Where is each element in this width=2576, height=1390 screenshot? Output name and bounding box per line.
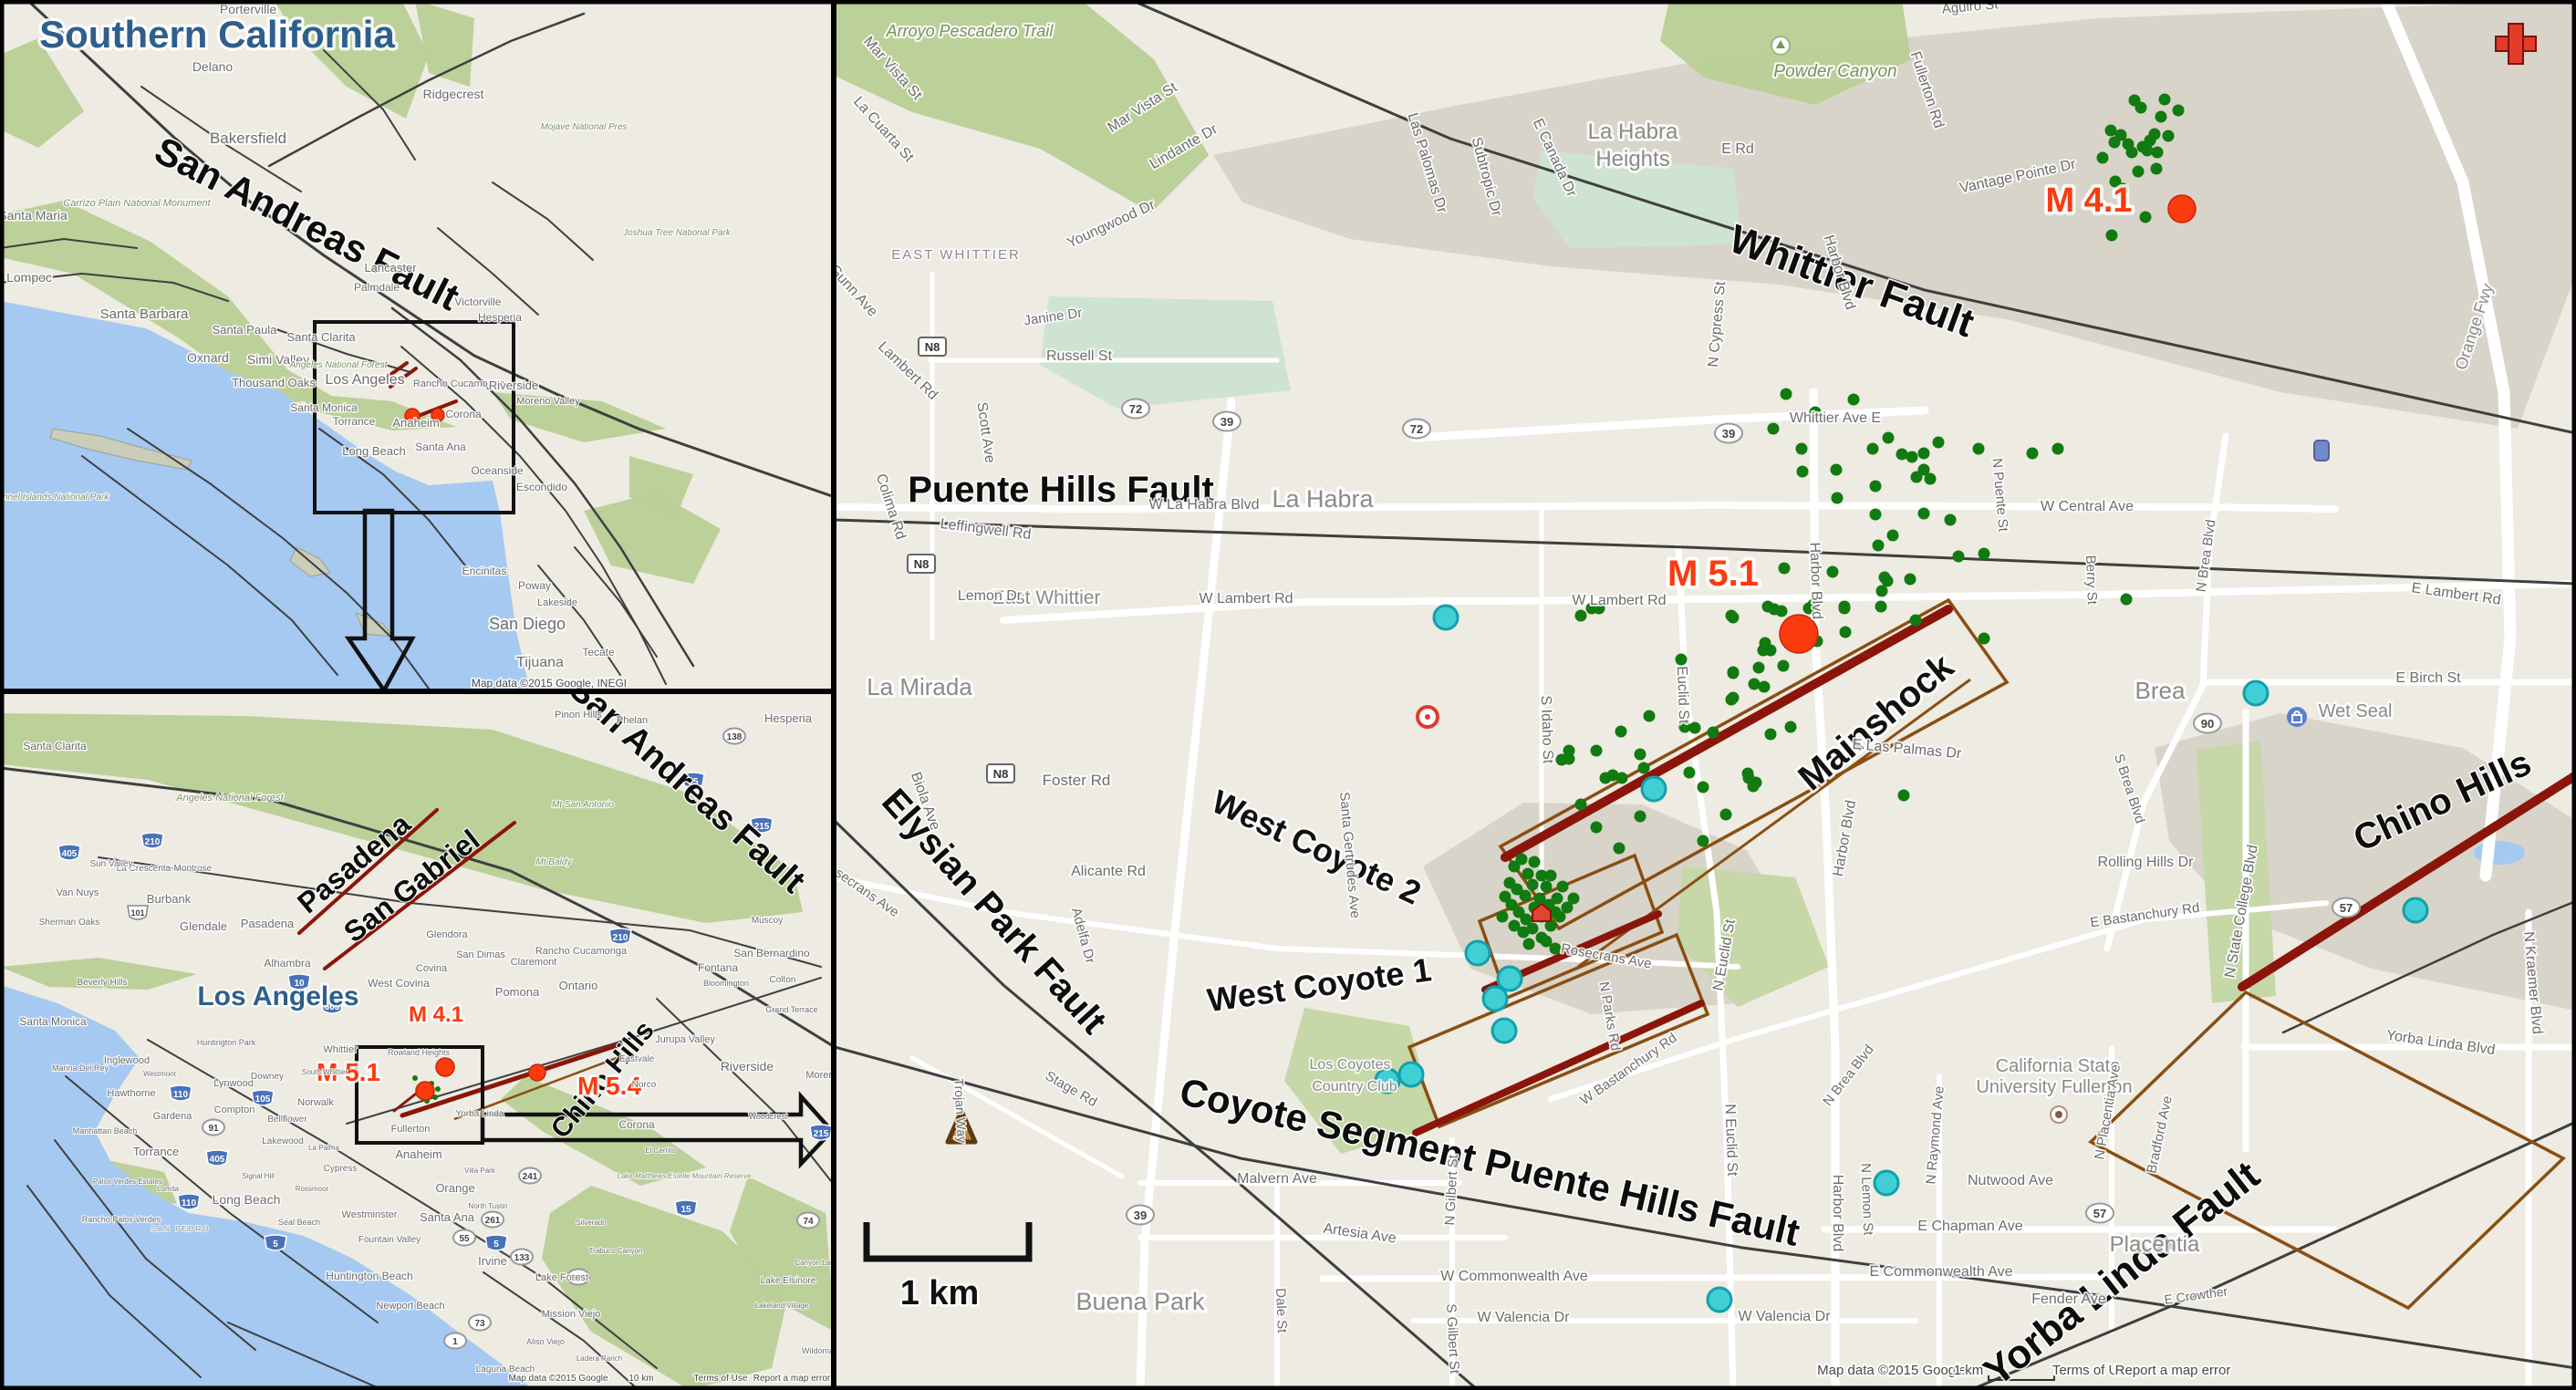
label-57: 57 <box>2093 1207 2106 1220</box>
label-santa-clarita: Santa Clarita <box>286 330 356 344</box>
label-los-angeles: Los Angeles <box>325 372 404 388</box>
route-shield-210: 210 <box>141 833 163 848</box>
label-marina-del-rey: Marina Del Rey <box>52 1063 109 1073</box>
label-n-lemon-st: N Lemon St <box>1858 1163 1876 1237</box>
map-la-habra-detail: N8N8N87272393939905757Whittier FaultPuen… <box>817 0 2576 1390</box>
aftershock-dot <box>1516 854 1528 866</box>
aftershock-dot <box>1527 879 1539 891</box>
label-gardena: Gardena <box>153 1111 193 1122</box>
aftershock-dot <box>1779 563 1791 575</box>
label-encinitas: Encinitas <box>462 565 507 577</box>
aftershock-dot <box>2097 152 2109 164</box>
aftershock-dot <box>1684 767 1696 779</box>
label-fullerton: Fullerton <box>391 1124 431 1135</box>
station-dot <box>1434 606 1458 629</box>
label-rossmoor: Rossmoor <box>296 1185 329 1193</box>
label-woodcrest: Woodcrest <box>749 1112 788 1121</box>
label-muscoy: Muscoy <box>752 916 783 926</box>
label-silverado: Silverado <box>576 1219 607 1227</box>
aftershock-dot <box>1785 721 1797 733</box>
route-shield-72: 72 <box>1122 399 1149 419</box>
aftershock-dot <box>1557 881 1569 893</box>
label-261: 261 <box>485 1216 501 1226</box>
label-n8: N8 <box>925 340 940 354</box>
aftershock-dot <box>1568 893 1580 905</box>
label-eastvale: Eastvale <box>619 1054 655 1064</box>
label-72: 72 <box>1410 422 1423 436</box>
label-72: 72 <box>1129 402 1142 416</box>
label-ladera-ranch: Ladera Ranch <box>576 1354 622 1363</box>
label-santa-monica: Santa Monica <box>290 401 358 414</box>
aftershock-dot <box>2163 130 2175 142</box>
label-corona: Corona <box>618 1118 655 1131</box>
label-santa-maria: Santa Maria <box>0 208 68 223</box>
label-lakewood: Lakewood <box>262 1136 304 1146</box>
aftershock-dot <box>1910 615 1922 627</box>
aftershock-dot <box>1635 749 1646 761</box>
aftershock-dot <box>2142 145 2154 157</box>
label-angeles-national-forest: Angeles National Forest <box>175 793 284 804</box>
label-newport-beach: Newport Beach <box>376 1301 444 1312</box>
route-shield-72: 72 <box>1403 420 1430 439</box>
aftershock-dot <box>1827 566 1839 578</box>
route-shield-90: 90 <box>2194 714 2221 733</box>
aftershock-dot <box>1563 753 1575 765</box>
label-e-rd: E Rd <box>1721 141 1754 157</box>
label-riverside: Riverside <box>489 379 538 392</box>
aftershock-dot <box>2126 147 2138 159</box>
label-norco: Norco <box>632 1080 657 1090</box>
label-lake-forest: Lake Forest <box>535 1272 588 1283</box>
label-foster-rd: Foster Rd <box>1043 772 1111 789</box>
label-mt-baldy: Mt Baldy <box>536 857 573 867</box>
aftershock-dot <box>1527 923 1539 935</box>
route-shield-15: 15 <box>675 1200 697 1216</box>
station-dot <box>2404 898 2427 922</box>
aftershock-dot <box>1973 443 1985 455</box>
label-compton: Compton <box>214 1105 255 1115</box>
label-dale-st: Dale St <box>1272 1288 1290 1334</box>
label-73: 73 <box>474 1319 485 1329</box>
route-shield-N8: N8 <box>908 555 935 573</box>
label-lynwood: Lynwood <box>213 1078 254 1089</box>
epicenter-dot <box>1780 615 1818 653</box>
aftershock-dot <box>1906 451 1918 463</box>
aftershock-dot <box>1753 662 1765 674</box>
route-shield-241: 241 <box>519 1168 541 1184</box>
aftershock-dot <box>1832 493 1844 504</box>
aftershock-dot <box>1616 773 1628 784</box>
aftershock-dot <box>1520 890 1532 902</box>
map-canvas: Southern CaliforniaSan Andreas FaultPort… <box>0 0 2576 1390</box>
epicenter-dot <box>436 1058 454 1076</box>
aftershock-dot <box>1575 799 1587 811</box>
label-lomita: Lomita <box>157 1185 180 1193</box>
label-cypress: Cypress <box>324 1164 358 1174</box>
aftershock-dot <box>1749 679 1761 690</box>
label-palos-verdes-estates: Palos Verdes Estates <box>93 1177 162 1186</box>
aftershock-dot <box>1614 843 1626 855</box>
route-shield-101: 101 <box>128 906 148 919</box>
aftershock-dot <box>1500 891 1511 903</box>
label-lompoc: Lompoc <box>6 270 52 285</box>
aftershock-dot <box>1720 809 1732 821</box>
route-shield-57: 57 <box>2086 1204 2114 1223</box>
label-carrizo-plain-national-monument: Carrizo Plain National Monument <box>63 198 211 209</box>
label-arroyo-pescadero-trail: Arroyo Pescadero Trail <box>886 22 1054 40</box>
label-santa-paula: Santa Paula <box>213 323 278 337</box>
label-ridgecrest: Ridgecrest <box>423 87 484 101</box>
label-lemon-dr: Lemon Dr <box>958 588 1023 604</box>
label-inglewood: Inglewood <box>104 1055 150 1066</box>
aftershock-dot <box>2027 448 2039 460</box>
label-westmont: Westmont <box>143 1070 177 1078</box>
label-mojave-national-pres: Mojave National Pres <box>540 122 627 132</box>
aftershock-dot <box>1778 660 1790 672</box>
aftershock-dot <box>1840 627 1852 638</box>
aftershock-dot <box>1776 606 1788 617</box>
label-n8: N8 <box>993 767 1009 781</box>
label-powder-canyon: Powder Canyon <box>1773 62 1896 81</box>
label-irvine: Irvine <box>478 1254 507 1268</box>
label-57: 57 <box>2340 901 2353 915</box>
label-138: 138 <box>727 732 743 742</box>
label-110: 110 <box>182 1198 197 1208</box>
route-shield-1: 1 <box>444 1333 466 1349</box>
aftershock-dot <box>1883 432 1895 444</box>
label-lancaster: Lancaster <box>364 261 417 275</box>
label-san-pedro: SAN PEDRO <box>151 1225 210 1233</box>
label-39: 39 <box>1722 427 1735 441</box>
route-shield-74: 74 <box>797 1213 819 1229</box>
label-w-lambert-rd: W Lambert Rd <box>1199 591 1293 607</box>
aftershock-dot <box>1591 745 1603 757</box>
label-15: 15 <box>680 1205 691 1215</box>
label-405: 405 <box>62 849 78 859</box>
label-anaheim: Anaheim <box>392 416 439 430</box>
aftershock-dot <box>2149 129 2161 140</box>
aftershock-dot <box>2135 102 2147 114</box>
label-w-lambert-rd: W Lambert Rd <box>1572 593 1666 608</box>
aftershock-dot <box>2052 443 2064 455</box>
route-shield-N8: N8 <box>919 337 946 356</box>
bag-icon <box>2287 707 2307 727</box>
label-oxnard: Oxnard <box>187 350 229 365</box>
label-huntington-park: Huntington Park <box>197 1038 256 1047</box>
label-long-beach: Long Beach <box>342 444 405 458</box>
label-10-km: 10 km <box>628 1374 653 1384</box>
aftershock-dot <box>1875 601 1887 613</box>
label-escondido: Escondido <box>516 481 567 493</box>
label-sherman-oaks: Sherman Oaks <box>39 918 100 928</box>
label-pomona: Pomona <box>495 985 540 999</box>
label-39: 39 <box>1220 415 1233 429</box>
panel-divider-horizontal <box>0 689 836 694</box>
aftershock-dot <box>2151 163 2163 175</box>
label-grand-terrace: Grand Terrace <box>765 1005 817 1014</box>
aftershock-dot <box>1925 473 1937 485</box>
label-lakeland-village: Lakeland Village <box>755 1302 809 1310</box>
label-s-idaho-st: S Idaho St <box>1538 695 1556 764</box>
label-glendale: Glendale <box>180 919 227 933</box>
label-trabuco-canyon: Trabuco Canyon <box>589 1247 643 1255</box>
label-fender-ave: Fender Ave <box>2031 1291 2106 1307</box>
aftershock-dot <box>1876 586 1888 597</box>
label-california-state: California State <box>1996 1056 2121 1076</box>
aftershock-dot <box>1689 722 1701 734</box>
aftershock-dot <box>2155 111 2167 123</box>
inset-los-angeles: 2104051011060513815215210110105914051101… <box>0 669 840 1390</box>
route-shield-138: 138 <box>723 729 745 744</box>
aftershock-dot <box>1933 437 1945 449</box>
label-north-tustin: North Tustin <box>468 1202 507 1210</box>
label-malvern-ave: Malvern Ave <box>1237 1171 1317 1187</box>
label-palmdale: Palmdale <box>354 281 400 294</box>
label-villa-park: Villa Park <box>464 1167 496 1175</box>
aftershock-dot <box>1848 394 1860 406</box>
label-whittier: Whittier <box>323 1044 358 1055</box>
aftershock-dot <box>1635 811 1646 823</box>
route-shield-91: 91 <box>203 1120 224 1136</box>
label-brea: Brea <box>2135 677 2186 704</box>
label-san-diego: San Diego <box>489 615 566 633</box>
label-corona: Corona <box>445 408 482 420</box>
tree-icon <box>1771 36 1790 55</box>
aftershock-dot <box>1698 835 1709 847</box>
aftershock-dot <box>1591 822 1603 834</box>
label-alhambra: Alhambra <box>264 957 311 970</box>
aftershock-dot <box>1523 939 1535 950</box>
label-w-commonwealth-ave: W Commonwealth Ave <box>1440 1269 1588 1284</box>
label-terms-of-use[interactable]: Terms of Use <box>694 1374 748 1384</box>
label-m-4-1: M 4.1 <box>2045 182 2132 220</box>
label-1-km: 1 km <box>1954 1363 1984 1378</box>
label-map-data-2015-google: Map data ©2015 Google <box>1817 1363 1967 1378</box>
route-shield-39: 39 <box>1127 1206 1154 1225</box>
label-alicante-rd: Alicante Rd <box>1071 864 1146 879</box>
station-dot <box>1399 1063 1423 1086</box>
aftershock-dot <box>1879 572 1891 584</box>
route-shield-210: 210 <box>609 928 631 944</box>
label-san-bernardino: San Bernardino <box>733 947 810 960</box>
label-mission-viejo: Mission Viejo <box>542 1309 601 1320</box>
aftershock-dot <box>1918 448 1930 460</box>
label-yorba-linda: Yorba Linda <box>455 1109 504 1119</box>
aftershock-dot <box>2109 137 2121 149</box>
label-euclid-st: Euclid St <box>1674 666 1691 724</box>
label-thousand-oaks: Thousand Oaks <box>232 376 316 389</box>
label-ontario: Ontario <box>559 979 598 992</box>
label-241: 241 <box>523 1172 538 1182</box>
route-shield-105: 105 <box>252 1090 274 1105</box>
label-joshua-tree-national-park: Joshua Tree National Park <box>622 228 732 238</box>
label-santa-ana: Santa Ana <box>420 1210 475 1224</box>
aftershock-dot <box>1979 633 1990 645</box>
label-pasadena: Pasadena <box>241 917 295 930</box>
aftershock-dot <box>2159 94 2171 106</box>
aftershock-dot <box>1726 610 1738 622</box>
label-los-angeles: Los Angeles <box>197 981 358 1011</box>
route-shield-55: 55 <box>453 1230 475 1246</box>
route-shield-N8: N8 <box>987 764 1014 783</box>
label-victorville: Victorville <box>454 296 501 308</box>
label-hesperia: Hesperia <box>764 711 813 725</box>
label-n-euclid-st: N Euclid St <box>1722 1104 1740 1177</box>
label-burbank: Burbank <box>147 892 192 906</box>
label-anaheim: Anaheim <box>395 1147 441 1161</box>
aftershock-dot <box>1575 610 1587 622</box>
aftershock-dot <box>2173 105 2185 117</box>
label-manhattan-beach: Manhattan Beach <box>73 1126 138 1136</box>
route-shield-39: 39 <box>1715 424 1742 443</box>
label-van-nuys: Van Nuys <box>57 887 99 898</box>
aftershock-dot <box>1887 530 1899 542</box>
label-santa-barbara: Santa Barbara <box>100 306 189 322</box>
aftershock-dot <box>1979 548 1990 560</box>
label-santa-monica: Santa Monica <box>19 1015 87 1028</box>
aftershock-dot <box>1698 782 1709 794</box>
aftershock-dot <box>1870 481 1882 493</box>
route-shield-5: 5 <box>265 1235 286 1250</box>
station-dot <box>1483 987 1507 1011</box>
aftershock-dot <box>1708 727 1719 739</box>
label-map-data-2015-google-inegi: Map data ©2015 Google, INEGI <box>472 677 627 690</box>
label-harbor-blvd: Harbor Blvd <box>1830 1175 1845 1251</box>
label-map-data-2015-google: Map data ©2015 Google <box>508 1374 608 1384</box>
label-bloomington: Bloomington <box>703 979 749 988</box>
label-south-whittier: South Whittier <box>302 1068 348 1076</box>
aftershock-dot <box>1796 443 1808 455</box>
label-report-a-map-error[interactable]: Report a map error <box>2115 1363 2231 1378</box>
label-hawthorne: Hawthorne <box>107 1088 155 1099</box>
aftershock-dot <box>1781 389 1792 400</box>
pin-icon <box>2314 441 2329 461</box>
label-rancho-cucamonga: Rancho Cucamonga <box>535 946 628 957</box>
label-5: 5 <box>493 1240 499 1250</box>
label-report-a-map-error[interactable]: Report a map error <box>753 1374 831 1384</box>
epicenter-dot <box>2168 195 2196 223</box>
label-los-coyotes: Los Coyotes <box>1310 1057 1391 1073</box>
label-pinon-hills: Pinon Hills <box>555 710 602 721</box>
label-berry-st: Berry St <box>2083 555 2100 606</box>
label-san-dimas: San Dimas <box>456 949 505 960</box>
label-russell-st: Russell St <box>1046 348 1113 364</box>
label-lake-elsinore: Lake Elsinore <box>761 1276 816 1286</box>
label-buena-park: Buena Park <box>1075 1288 1205 1315</box>
station-dot <box>1642 777 1666 801</box>
label-w-valencia-dr: W Valencia Dr <box>1477 1310 1570 1325</box>
aftershock-dot <box>1905 574 1916 586</box>
aftershock-dot <box>1529 856 1541 868</box>
station-dot <box>1875 1171 1898 1195</box>
label-bellflower: Bellflower <box>267 1115 307 1125</box>
inset-southern-california: Southern CaliforniaSan Andreas FaultPort… <box>0 0 835 691</box>
label-aliso-viejo: Aliso Viejo <box>526 1337 565 1346</box>
label-hesperia: Hesperia <box>478 311 522 324</box>
label-nutwood-ave: Nutwood Ave <box>1968 1173 2053 1188</box>
label-55: 55 <box>459 1234 470 1244</box>
aftershock-dot <box>1945 514 1957 526</box>
aftershock-dot <box>1552 893 1563 905</box>
label-beverly-hills: Beverly Hills <box>77 978 127 988</box>
aftershock-dot <box>1748 781 1760 793</box>
label-placentia: Placentia <box>2110 1232 2200 1257</box>
route-shield-110: 110 <box>178 1194 200 1209</box>
aftershock-dot <box>1644 711 1656 722</box>
label-1: 1 <box>452 1337 458 1347</box>
aftershock-dot <box>1768 423 1780 435</box>
label-poway: Poway <box>518 579 551 592</box>
label-1-km: 1 km <box>900 1274 980 1312</box>
label-channel-islands-national-park: Channel Islands National Park <box>0 493 109 503</box>
label-w-central-ave: W Central Ave <box>2041 499 2134 514</box>
route-shield-215: 215 <box>810 1125 832 1140</box>
label-east-whittier: EAST WHITTIER <box>891 247 1021 263</box>
station-dot <box>1708 1288 1731 1312</box>
label-santa-ana: Santa Ana <box>415 441 466 453</box>
label-downey: Downey <box>251 1072 284 1082</box>
label-tecate: Tecate <box>582 646 615 659</box>
aftershock-dot <box>435 1086 441 1092</box>
aftershock-dot <box>1831 464 1843 476</box>
aftershock-dot <box>412 1075 418 1081</box>
label-long-beach: Long Beach <box>213 1192 281 1207</box>
label-tijuana: Tijuana <box>516 655 564 670</box>
aftershock-dot <box>1545 870 1557 882</box>
aftershock-dot <box>1870 509 1882 521</box>
label-covina: Covina <box>416 963 448 974</box>
label-moreno-valley: Moreno Valley <box>516 396 580 407</box>
aftershock-dot <box>1953 551 1965 563</box>
label-74: 74 <box>803 1217 814 1227</box>
aftershock-dot <box>1918 508 1930 520</box>
aftershock-dot <box>2121 594 2133 606</box>
label-colton: Colton <box>770 975 796 985</box>
label-west-covina: West Covina <box>368 977 430 990</box>
label-5: 5 <box>273 1240 278 1250</box>
label-39: 39 <box>1134 1208 1147 1222</box>
label-torrance: Torrance <box>333 415 376 428</box>
label-fontana: Fontana <box>698 961 738 974</box>
label-90: 90 <box>2201 717 2214 731</box>
label-e-chapman-ave: E Chapman Ave <box>1917 1219 2022 1234</box>
label-105: 105 <box>255 1094 271 1105</box>
aftershock-dot <box>2133 166 2145 178</box>
label-210: 210 <box>613 933 628 943</box>
aftershock-dot <box>1760 638 1771 649</box>
route-shield-110: 110 <box>170 1085 192 1101</box>
label-el-cerrito: El Cerrito <box>645 1146 676 1155</box>
label-wet-seal: Wet Seal <box>2319 701 2393 721</box>
label-norwalk: Norwalk <box>297 1097 334 1108</box>
label-orange: Orange <box>435 1181 474 1195</box>
label-claremont: Claremont <box>511 957 557 968</box>
aftershock-dot <box>2106 230 2118 242</box>
route-shield-405: 405 <box>206 1150 228 1166</box>
route-shield-73: 73 <box>469 1315 491 1331</box>
csuf-icon <box>2051 1106 2067 1123</box>
label-n8: N8 <box>914 557 930 571</box>
aftershock-dot <box>1898 790 1910 802</box>
label-whittier-ave-e: Whittier Ave E <box>1790 410 1881 426</box>
label-rancho-palos-verdes: Rancho Palos Verdes <box>82 1215 161 1224</box>
label-110: 110 <box>173 1090 189 1100</box>
label-signal-hill: Signal Hill <box>242 1172 275 1180</box>
aftershock-dot <box>1797 466 1809 478</box>
label-e-birch-st: E Birch St <box>2395 670 2461 686</box>
label-la-mirada: La Mirada <box>867 673 972 700</box>
aftershock-dot <box>1759 681 1771 693</box>
